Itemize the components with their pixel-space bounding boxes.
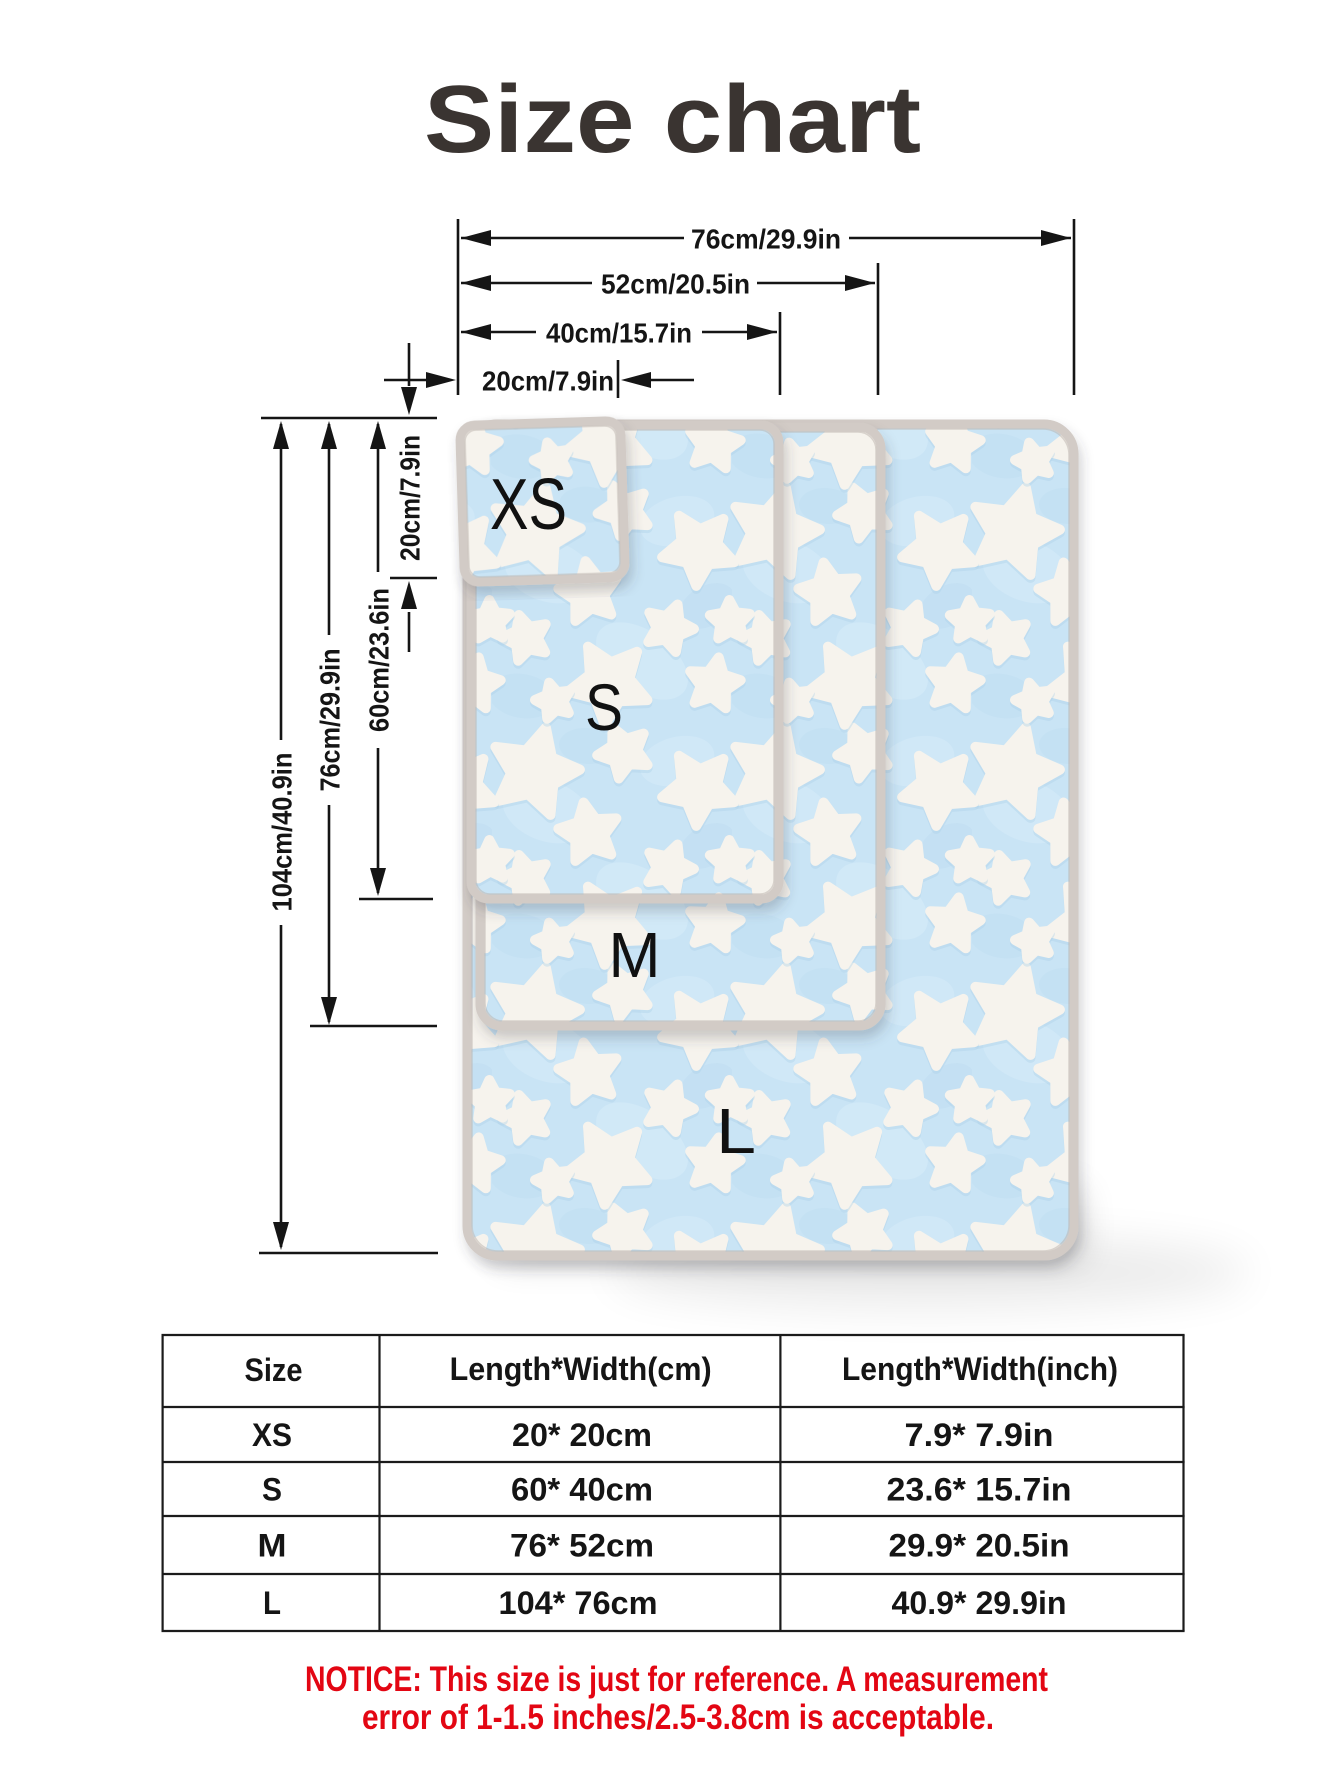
svg-text:76cm/29.9in: 76cm/29.9in [315,649,346,792]
svg-text:Length*Width(inch): Length*Width(inch) [842,1351,1118,1387]
svg-text:M: M [609,919,661,991]
svg-text:40.9* 29.9in: 40.9* 29.9in [892,1585,1067,1621]
svg-text:20cm/7.9in: 20cm/7.9in [482,366,614,397]
svg-text:L: L [716,1095,756,1167]
svg-text:52cm/20.5in: 52cm/20.5in [601,269,750,300]
svg-text:S: S [585,670,623,744]
svg-text:60cm/23.6in: 60cm/23.6in [364,588,395,732]
svg-text:20cm/7.9in: 20cm/7.9in [395,435,426,561]
svg-text:104cm/40.9in: 104cm/40.9in [267,753,298,912]
svg-text:Size: Size [245,1352,303,1388]
svg-text:S: S [262,1472,282,1508]
svg-text:NOTICE: This size is just for: NOTICE: This size is just for reference.… [305,1660,1048,1699]
svg-text:L: L [263,1585,281,1621]
svg-text:XS: XS [252,1417,292,1453]
svg-text:104* 76cm: 104* 76cm [499,1585,658,1621]
svg-text:Size chart: Size chart [424,66,921,173]
svg-text:60* 40cm: 60* 40cm [511,1472,653,1508]
svg-text:40cm/15.7in: 40cm/15.7in [546,318,692,349]
svg-text:XS: XS [490,465,567,545]
svg-text:Length*Width(cm): Length*Width(cm) [450,1351,712,1387]
svg-text:76cm/29.9in: 76cm/29.9in [691,224,841,255]
svg-text:M: M [258,1528,287,1564]
svg-text:23.6* 15.7in: 23.6* 15.7in [887,1472,1072,1508]
svg-text:29.9* 20.5in: 29.9* 20.5in [889,1528,1070,1564]
svg-text:error of 1-1.5 inches/2.5-3.8c: error of 1-1.5 inches/2.5-3.8cm is accep… [362,1698,994,1737]
svg-text:76* 52cm: 76* 52cm [510,1528,654,1564]
svg-text:20* 20cm: 20* 20cm [512,1417,652,1453]
svg-text:7.9* 7.9in: 7.9* 7.9in [905,1417,1054,1453]
